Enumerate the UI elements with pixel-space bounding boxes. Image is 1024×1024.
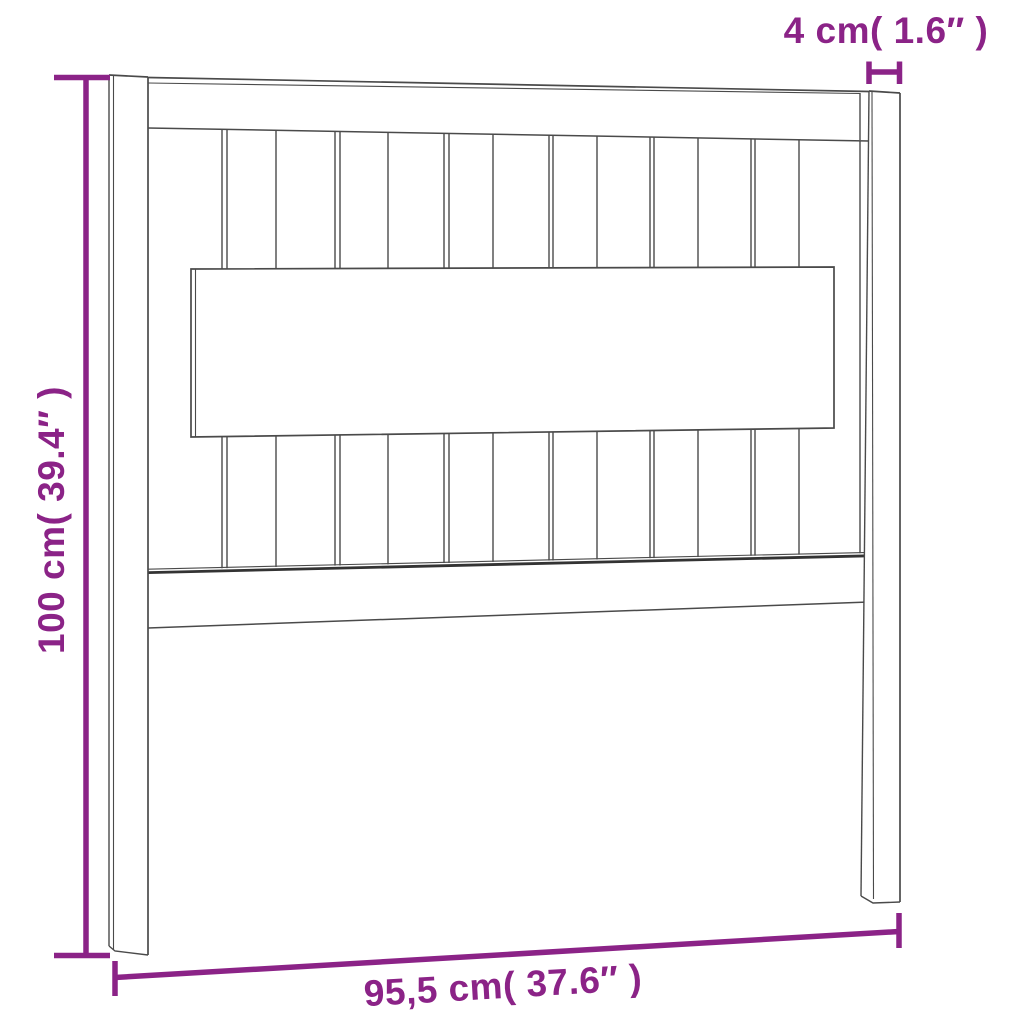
bottom-rail (148, 552, 869, 628)
post-thickness-dimension (869, 62, 900, 85)
dimension-diagram: 4 cm( 1.6″ ) 100 cm( 39.4″ ) 95,5 cm( 37… (0, 0, 1024, 1024)
center-panel (191, 267, 834, 437)
left-post (109, 75, 148, 955)
height-label: 100 cm( 39.4″ ) (31, 386, 73, 654)
headboard-drawing (0, 0, 1024, 1024)
right-post (861, 91, 900, 903)
post-thickness-label: 4 cm( 1.6″ ) (784, 10, 989, 52)
top-rail (148, 78, 869, 142)
